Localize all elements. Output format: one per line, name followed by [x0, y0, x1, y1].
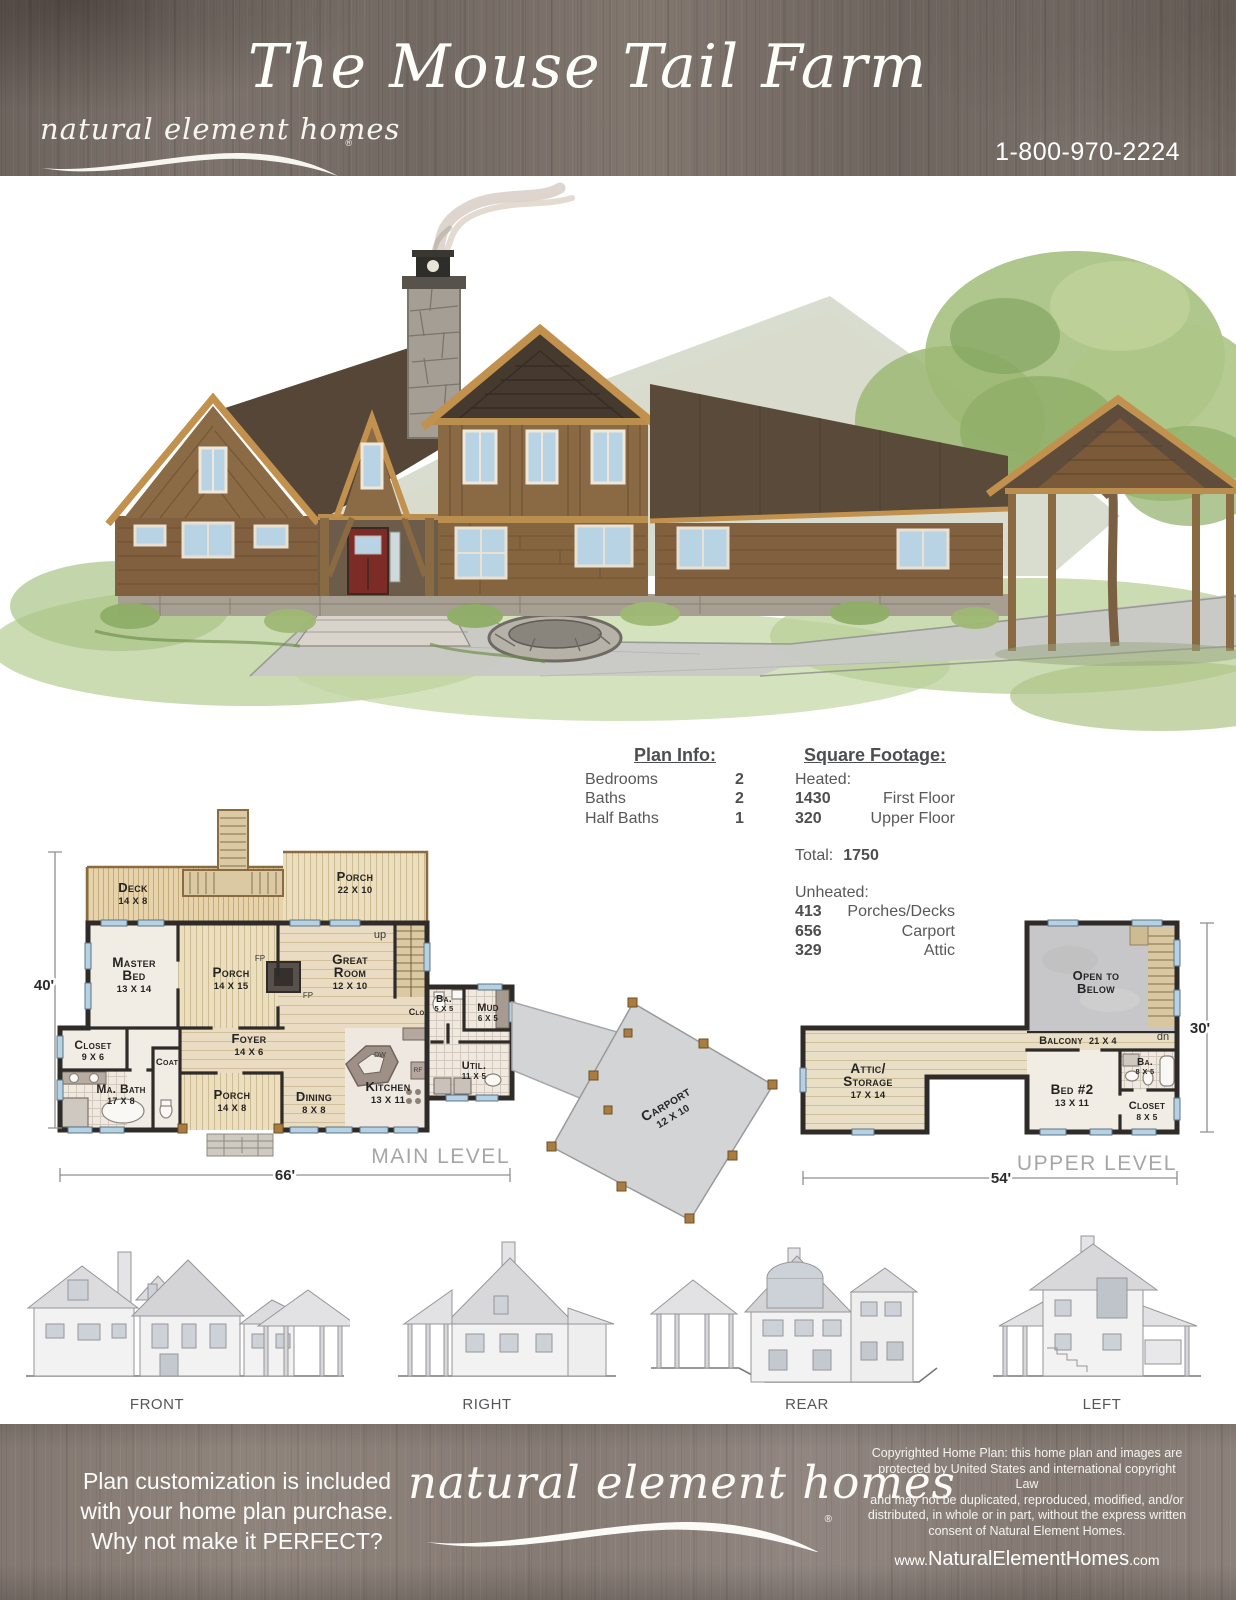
main-level-floor-plan: Deck14 X 8 Porch22 X 10 MasterBed13 X 14… — [28, 780, 808, 1225]
total-row: Total:1750 — [795, 846, 955, 866]
room-label-clo: Clo. — [409, 1007, 428, 1017]
elevation-label-rear: REAR — [742, 1396, 872, 1413]
fireplace-label: FP — [303, 991, 313, 1000]
page-title: The Mouse Tail Farm — [0, 32, 1176, 102]
room-label-bed2: Bed #213 X 11 — [1051, 1082, 1094, 1109]
stairs-up-label: up — [374, 929, 386, 941]
fireplace-label: FP — [255, 954, 265, 963]
height-dimension: 30' — [1190, 1020, 1210, 1037]
room-label-ba: Ba.5 X 5 — [434, 994, 453, 1013]
phone-number: 1-800-970-2224 — [995, 138, 1180, 167]
house-rendering — [0, 176, 1236, 732]
dishwasher-label: DW — [374, 1052, 386, 1059]
website-url: www.NaturalElementHomes.com — [866, 1548, 1188, 1571]
room-label-porch-mid: Porch14 X 15 — [212, 965, 249, 992]
elevation-label-front: FRONT — [92, 1396, 222, 1413]
fountain — [489, 615, 621, 661]
brochure-page: natural element homes ® The Mouse Tail F… — [0, 0, 1236, 1600]
registered-mark: ® — [345, 138, 352, 148]
footer: Plan customization is included with your… — [0, 1424, 1236, 1600]
upper-level-label: UPPER LEVEL — [1017, 1152, 1177, 1175]
footer-brand-logo: natural element homes ® — [408, 1456, 838, 1566]
sqft-row: 1430First Floor — [795, 789, 955, 809]
room-label-mud: Mud6 X 5 — [477, 1002, 499, 1023]
room-label-porch-top: Porch22 X 10 — [337, 869, 374, 896]
room-label-porch-bottom: Porch14 X 8 — [214, 1087, 251, 1114]
room-label-ba-upper: Ba.8 X 5 — [1135, 1057, 1154, 1076]
brand-swoosh-icon — [40, 150, 340, 176]
copyright-text: Copyrighted Home Plan: this home plan an… — [866, 1446, 1188, 1539]
plan-info-heading: Plan Info: — [585, 746, 765, 766]
room-label-open-below: Open toBelow — [1073, 968, 1120, 996]
room-label-balcony: Balcony21 X 4 — [1039, 1035, 1117, 1047]
front-elevation-drawing — [20, 1228, 350, 1388]
main-level-label: MAIN LEVEL — [371, 1145, 510, 1168]
sqft-row: 320Upper Floor — [795, 809, 955, 829]
footer-brand-swoosh-icon — [423, 1518, 823, 1552]
heated-label: Heated: — [795, 770, 955, 790]
rear-elevation-drawing — [645, 1222, 945, 1390]
room-label-foyer: Foyer14 X 6 — [232, 1031, 267, 1058]
width-dimension: 66' — [275, 1167, 295, 1184]
left-elevation-drawing — [985, 1228, 1210, 1388]
height-dimension: 40' — [34, 977, 54, 994]
refrigerator-label: RF — [414, 1067, 423, 1074]
header: natural element homes ® The Mouse Tail F… — [0, 0, 1236, 176]
room-label-util: Util.11 X 5 — [462, 1060, 487, 1081]
room-label-attic-storage: Attic/Storage17 X 14 — [843, 1061, 892, 1101]
room-label-great-room: GreatRoom12 X 10 — [332, 952, 368, 992]
brand-logo: natural element homes ® — [40, 112, 350, 172]
elevation-label-left: LEFT — [1037, 1396, 1167, 1413]
stairs-down-label: dn — [1157, 1031, 1169, 1043]
registered-mark: ® — [825, 1514, 832, 1525]
right-elevation-drawing — [390, 1228, 625, 1388]
promo-text: Plan customization is included with your… — [42, 1466, 432, 1556]
room-label-coat: Coat — [156, 1057, 179, 1068]
elevation-label-right: RIGHT — [422, 1396, 552, 1413]
upper-level-floor-plan: Open toBelow Balcony21 X 4 Attic/Storage… — [780, 880, 1236, 1200]
room-label-deck: Deck14 X 8 — [118, 880, 148, 907]
entry-porch — [318, 514, 438, 596]
width-dimension: 54' — [991, 1170, 1011, 1187]
square-footage-heading: Square Footage: — [795, 746, 955, 766]
room-label-kitchen: Kitchen13 X 11 — [366, 1079, 411, 1106]
